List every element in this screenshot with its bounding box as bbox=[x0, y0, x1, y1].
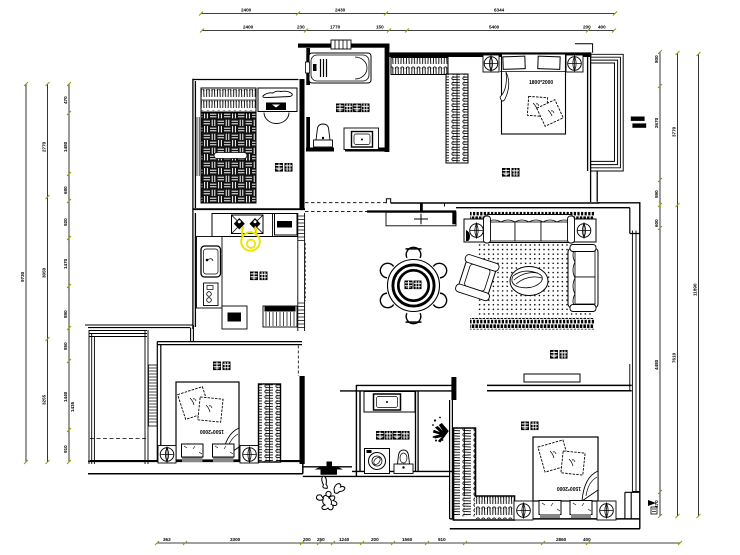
svg-text:800: 800 bbox=[654, 55, 659, 63]
svg-text:1440: 1440 bbox=[63, 391, 68, 402]
svg-text:990: 990 bbox=[654, 190, 659, 198]
svg-text:1800*2000: 1800*2000 bbox=[529, 80, 553, 86]
svg-text:680: 680 bbox=[63, 186, 68, 194]
svg-text:1560: 1560 bbox=[402, 537, 413, 542]
svg-text:9730: 9730 bbox=[20, 271, 25, 282]
svg-text:400: 400 bbox=[583, 537, 591, 542]
svg-text:2770: 2770 bbox=[42, 141, 47, 152]
svg-text:1470: 1470 bbox=[63, 258, 68, 269]
svg-text:400: 400 bbox=[598, 25, 606, 30]
svg-text:250: 250 bbox=[317, 537, 325, 542]
svg-text:5400: 5400 bbox=[489, 25, 500, 30]
svg-text:2400: 2400 bbox=[241, 8, 252, 13]
svg-text:200: 200 bbox=[371, 537, 379, 542]
svg-text:910: 910 bbox=[63, 445, 68, 453]
svg-text:2400: 2400 bbox=[243, 25, 254, 30]
svg-text:200: 200 bbox=[303, 537, 311, 542]
svg-text:1480: 1480 bbox=[63, 141, 68, 152]
svg-text:2860: 2860 bbox=[556, 537, 567, 542]
svg-text:3050: 3050 bbox=[42, 267, 47, 278]
svg-text:1770: 1770 bbox=[330, 25, 341, 30]
svg-text:890: 890 bbox=[63, 310, 68, 318]
svg-text:850: 850 bbox=[63, 342, 68, 350]
svg-text:4480: 4480 bbox=[654, 359, 659, 370]
svg-text:3255: 3255 bbox=[42, 394, 47, 405]
svg-text:7610: 7610 bbox=[672, 352, 677, 363]
svg-text:3770: 3770 bbox=[672, 126, 677, 137]
svg-text:1435: 1435 bbox=[70, 401, 75, 412]
svg-text:600: 600 bbox=[654, 219, 659, 227]
svg-text:920: 920 bbox=[63, 218, 68, 226]
svg-text:150: 150 bbox=[376, 25, 384, 30]
svg-text:6344: 6344 bbox=[494, 8, 505, 13]
svg-text:362: 362 bbox=[163, 537, 171, 542]
svg-text:2670: 2670 bbox=[654, 117, 659, 128]
svg-text:470: 470 bbox=[63, 96, 68, 104]
svg-text:230: 230 bbox=[297, 25, 305, 30]
svg-text:11890: 11890 bbox=[693, 283, 698, 296]
svg-text:2430: 2430 bbox=[335, 8, 346, 13]
svg-text:1500*2000: 1500*2000 bbox=[557, 485, 581, 491]
svg-text:3300: 3300 bbox=[230, 537, 241, 542]
svg-text:1240: 1240 bbox=[339, 537, 350, 542]
svg-text:200: 200 bbox=[583, 25, 591, 30]
svg-text:910: 910 bbox=[438, 537, 446, 542]
svg-text:1500*2000: 1500*2000 bbox=[200, 428, 224, 434]
